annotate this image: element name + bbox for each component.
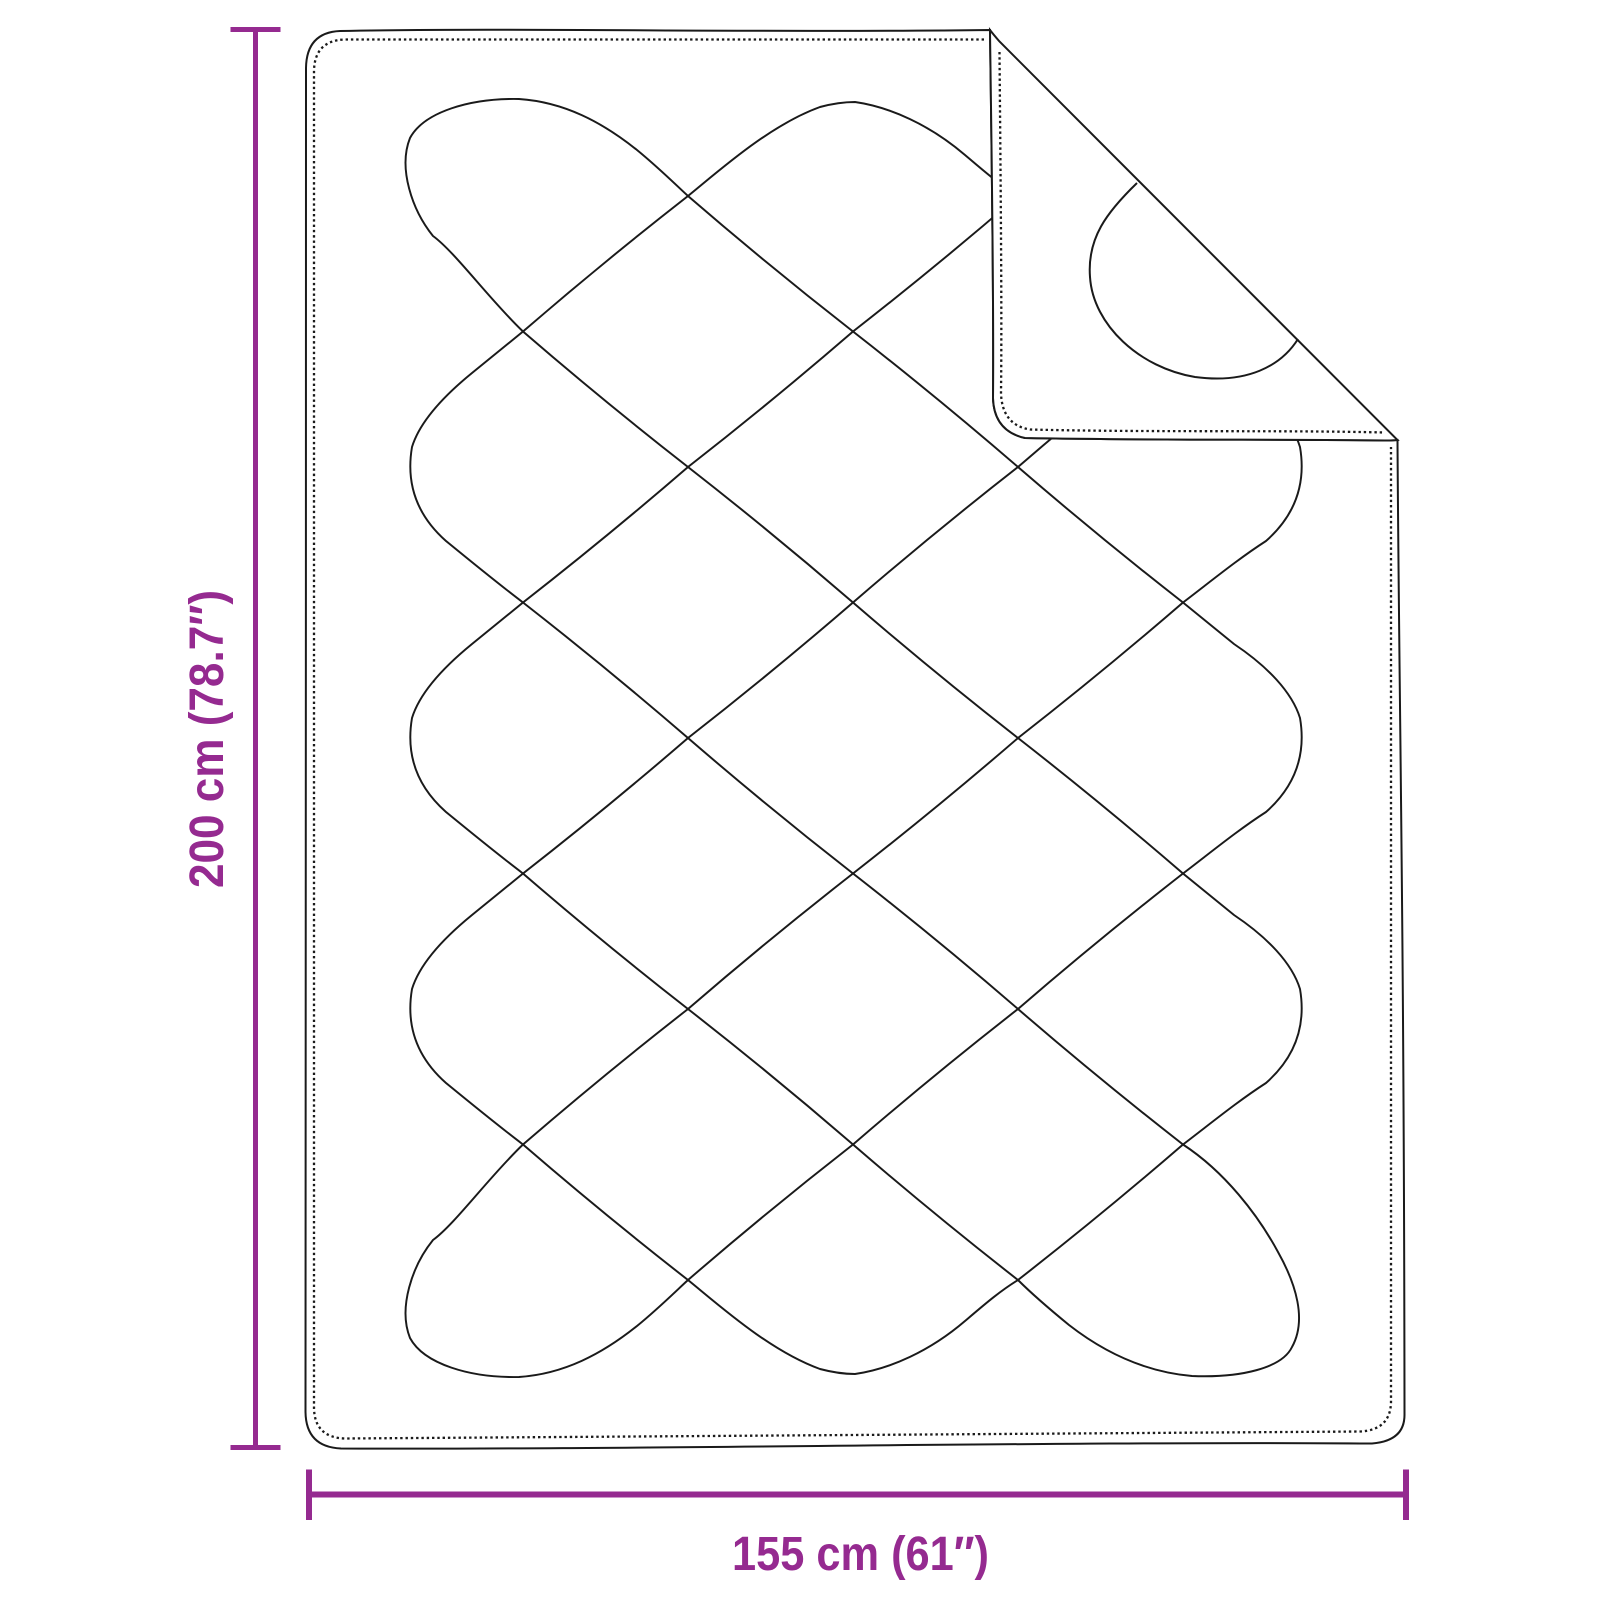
svg-text:155 cm (61″): 155 cm (61″) [732, 1528, 989, 1581]
svg-text:200 cm (78.7″): 200 cm (78.7″) [181, 590, 234, 888]
